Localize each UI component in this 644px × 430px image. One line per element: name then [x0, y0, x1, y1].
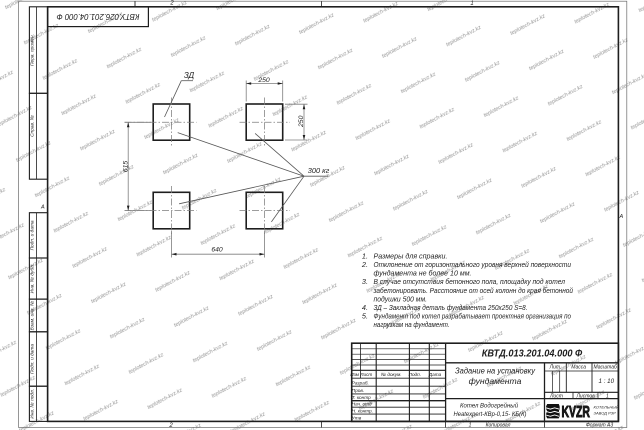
svg-text:1 : 10: 1 : 10 [599, 378, 615, 385]
svg-text:KVZR: KVZR [562, 404, 591, 421]
svg-text:Взам. инв. №: Взам. инв. № [29, 301, 35, 331]
svg-text:Heatexpert-КВр-0,15- КБ(К): Heatexpert-КВр-0,15- КБ(К) [454, 412, 527, 418]
svg-text:Лист: Лист [549, 394, 563, 400]
svg-text:А: А [618, 214, 623, 220]
svg-text:Справ. №: Справ. № [29, 115, 35, 137]
svg-text:Инв. № подл.: Инв. № подл. [29, 389, 35, 419]
svg-text:615: 615 [123, 161, 130, 173]
svg-text:Нач. отд: Нач. отд [352, 402, 372, 407]
svg-text:640: 640 [211, 247, 223, 254]
svg-text:Изм: Изм [350, 372, 359, 377]
svg-text:1: 1 [470, 1, 473, 7]
svg-text:фундамента: фундамента [469, 376, 522, 386]
svg-text:А: А [40, 205, 45, 211]
svg-text:2: 2 [168, 423, 173, 429]
svg-text:Разраб.: Разраб. [352, 381, 369, 386]
svg-text:Масса: Масса [571, 365, 586, 371]
svg-text:нагрузкам на фундамент.: нагрузкам на фундамент. [374, 320, 450, 329]
svg-text:300 кг: 300 кг [308, 166, 330, 175]
svg-text:Дата: Дата [428, 372, 442, 377]
svg-text:Листов: Листов [576, 394, 596, 400]
svg-text:Подп. и дата: Подп. и дата [29, 220, 35, 250]
svg-text:Копировал: Копировал [486, 423, 511, 429]
svg-text:ЗД: ЗД [184, 71, 195, 80]
svg-text:Т. контр: Т. контр [352, 395, 371, 400]
svg-text:Пров.: Пров. [352, 388, 364, 393]
svg-text:ЗАВОД РЗР: ЗАВОД РЗР [594, 411, 617, 416]
svg-text:250: 250 [298, 115, 305, 128]
svg-text:Формат А3: Формат А3 [586, 423, 614, 429]
svg-text:Котел Водогрейный: Котел Водогрейный [460, 402, 519, 409]
svg-text:Задание на установку: Задание на установку [455, 366, 536, 376]
svg-text:№ докум.: № докум. [381, 372, 402, 377]
svg-text:3.: 3. [362, 277, 368, 286]
svg-text:Масштаб: Масштаб [594, 365, 618, 371]
svg-text:Н. контр.: Н. контр. [352, 408, 373, 413]
svg-text:2.: 2. [361, 260, 368, 269]
svg-text:Перв. примен.: Перв. примен. [29, 34, 35, 66]
svg-text:250: 250 [257, 77, 270, 84]
svg-text:Утв: Утв [352, 416, 362, 421]
svg-text:КВТУ.026.201.04.000 Ф: КВТУ.026.201.04.000 Ф [56, 12, 139, 21]
svg-text:Инв. № дубл.: Инв. № дубл. [29, 264, 35, 294]
svg-text:5.: 5. [362, 312, 368, 321]
svg-text:2: 2 [169, 1, 174, 7]
svg-text:1: 1 [606, 394, 609, 400]
svg-text:Подп. и дата: Подп. и дата [29, 344, 35, 374]
svg-text:КОТЕЛЬНЫЙ: КОТЕЛЬНЫЙ [594, 405, 619, 410]
svg-text:КВТД.013.201.04.000 Ф: КВТД.013.201.04.000 Ф [482, 348, 583, 359]
svg-text:1: 1 [469, 423, 472, 429]
svg-text:Лит.: Лит. [549, 365, 562, 371]
svg-text:Подп.: Подп. [409, 372, 421, 377]
svg-text:Лист: Лист [359, 372, 372, 377]
